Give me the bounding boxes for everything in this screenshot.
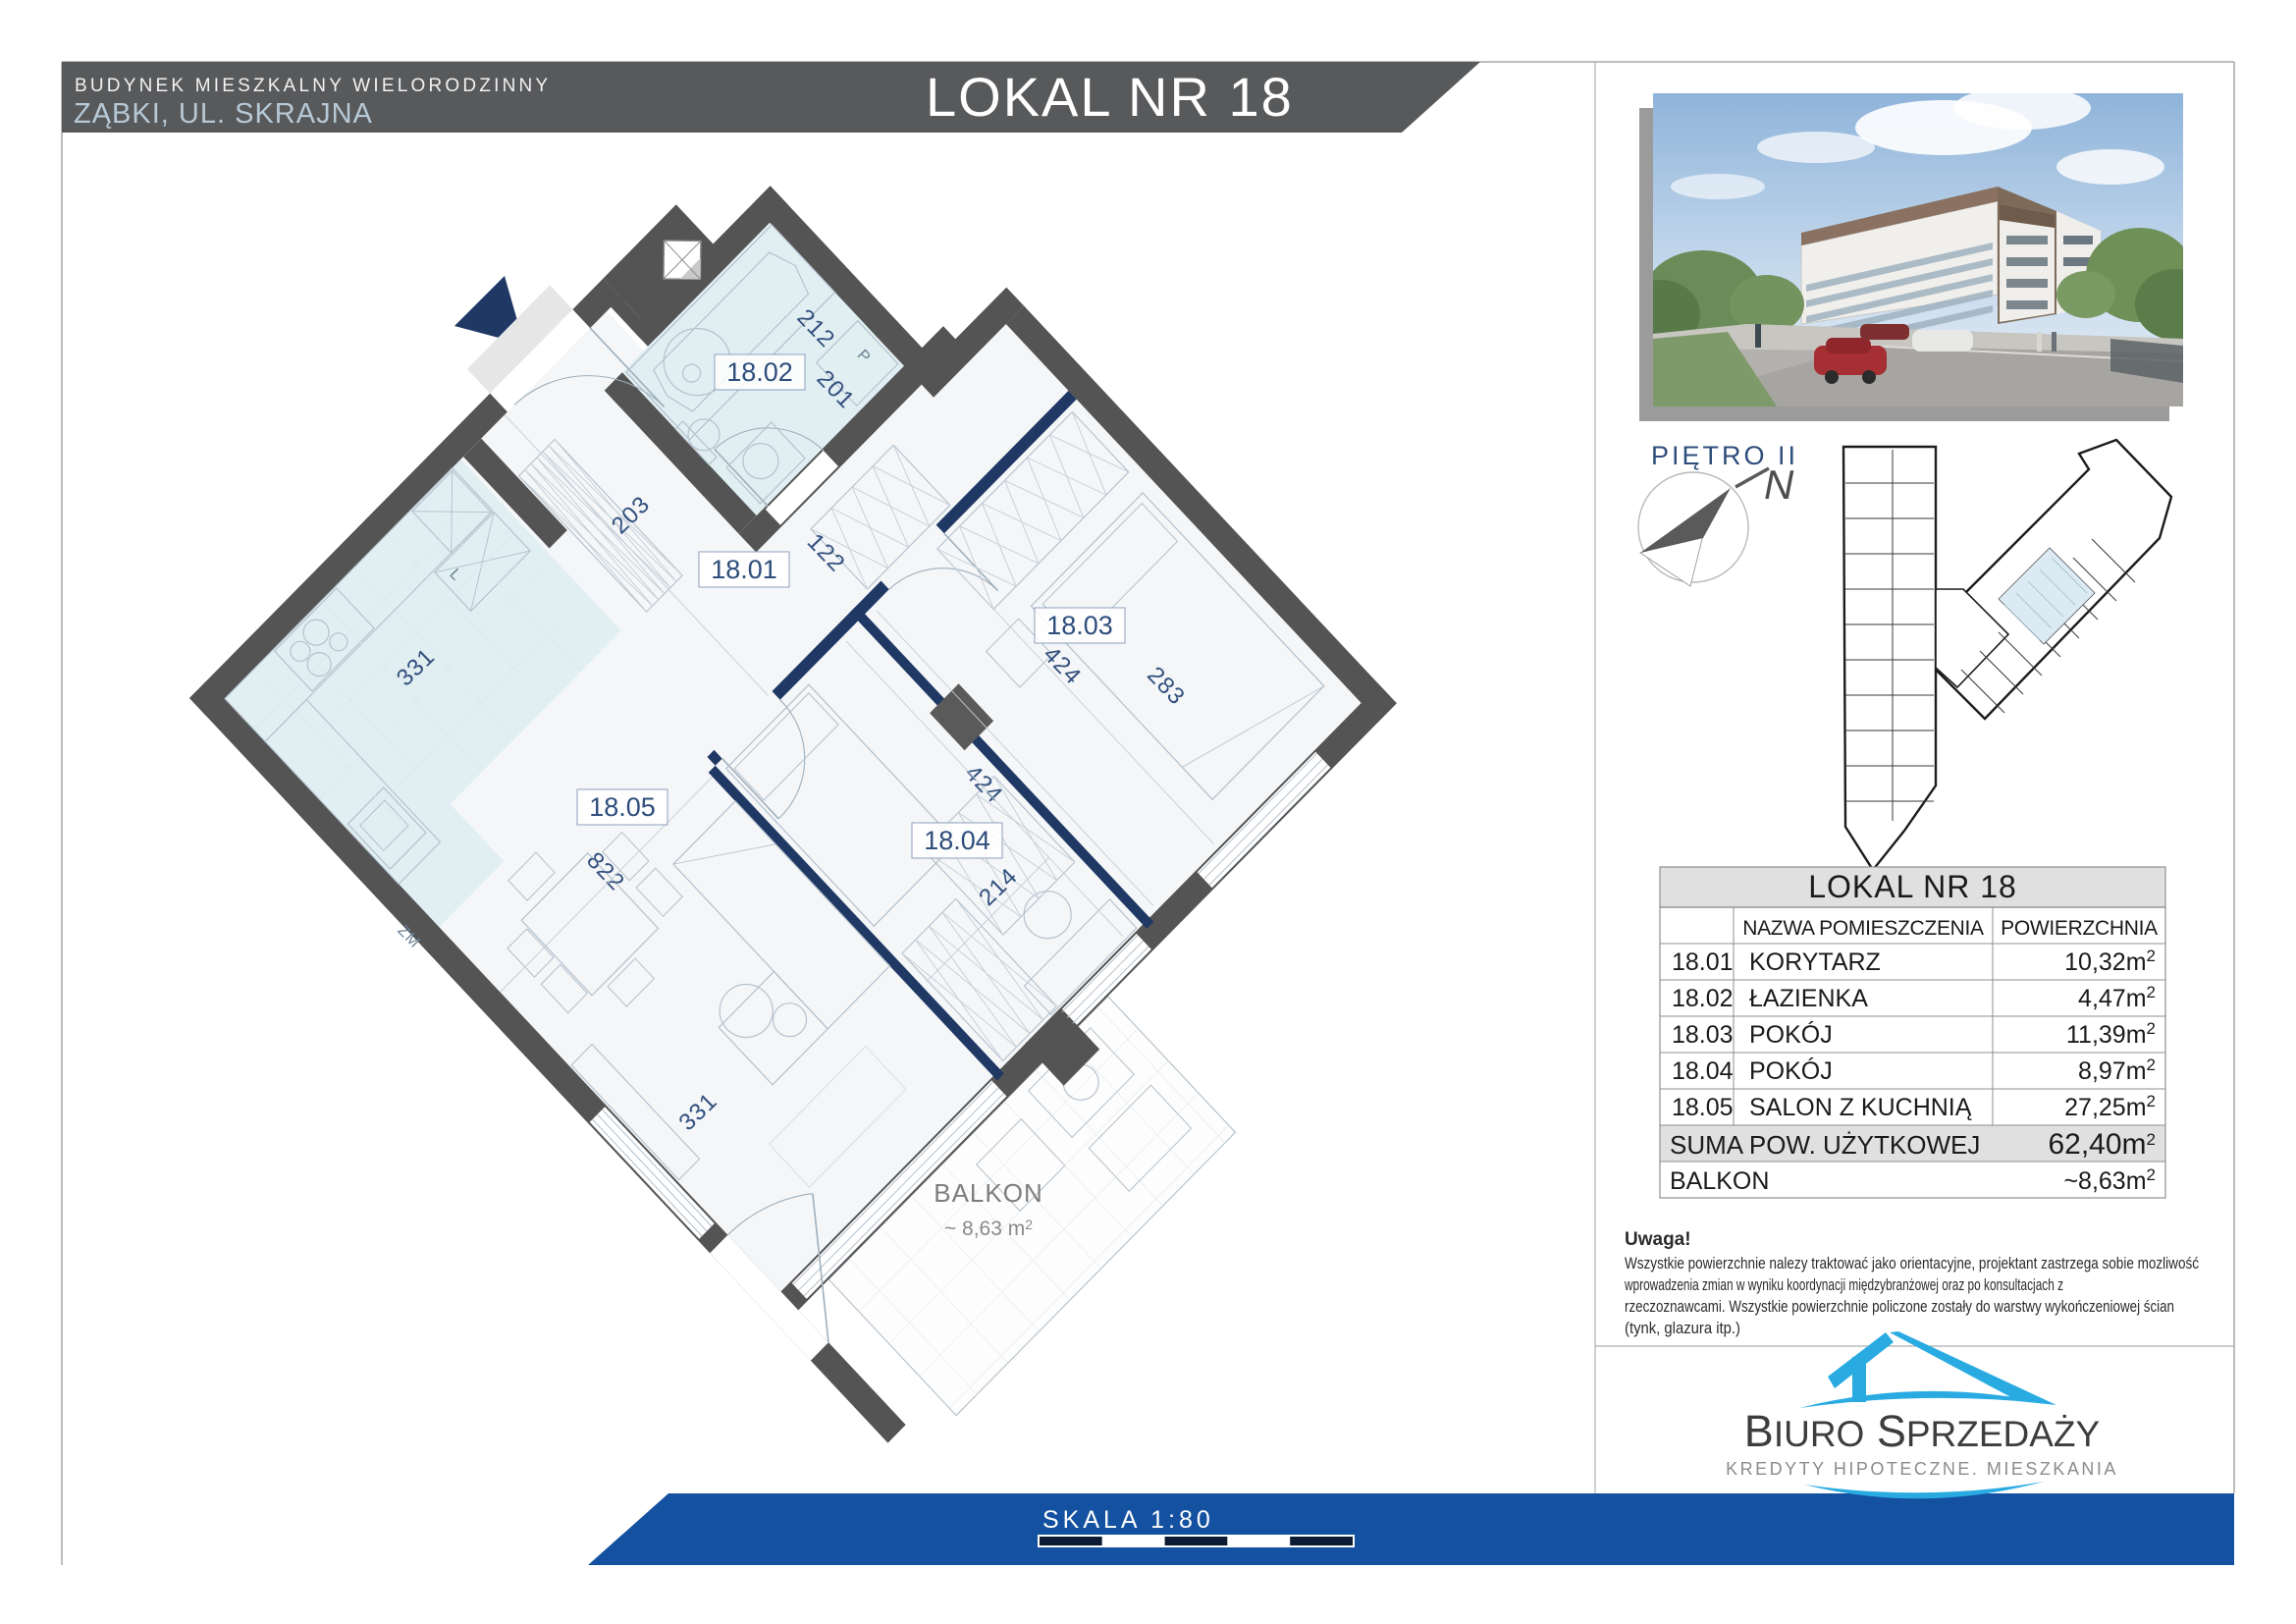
svg-text:18.01: 18.01 [711, 555, 777, 584]
svg-text:18.02: 18.02 [726, 357, 793, 387]
svg-text:KORYTARZ: KORYTARZ [1749, 948, 1881, 976]
svg-text:18.05: 18.05 [1672, 1094, 1734, 1121]
svg-text:NAZWA POMIESZCZENIA: NAZWA POMIESZCZENIA [1742, 917, 1984, 940]
svg-text:ŁAZIENKA: ŁAZIENKA [1749, 985, 1868, 1012]
svg-text:8,97m2: 8,97m2 [2078, 1056, 2156, 1085]
svg-text:18.04: 18.04 [1672, 1057, 1734, 1085]
svg-text:SKALA 1:80: SKALA 1:80 [1042, 1506, 1214, 1534]
svg-text:LOKAL NR 18: LOKAL NR 18 [1808, 869, 2017, 904]
svg-text:18.04: 18.04 [924, 826, 990, 855]
svg-text:POKÓJ: POKÓJ [1749, 1020, 1833, 1049]
svg-text:Uwaga!: Uwaga! [1625, 1229, 1691, 1250]
svg-text:LOKAL NR 18: LOKAL NR 18 [926, 66, 1294, 128]
svg-text:27,25m2: 27,25m2 [2064, 1092, 2156, 1121]
svg-text:ZĄBKI, UL. SKRAJNA: ZĄBKI, UL. SKRAJNA [74, 98, 373, 130]
svg-text:SUMA POW. UŻYTKOWEJ: SUMA POW. UŻYTKOWEJ [1670, 1130, 1980, 1160]
svg-text:18.02: 18.02 [1672, 985, 1734, 1012]
svg-text:Wszystkie powierzchnie nalezy: Wszystkie powierzchnie nalezy traktować … [1625, 1254, 2199, 1272]
svg-text:(tynk, glazura itp.): (tynk, glazura itp.) [1625, 1319, 1740, 1337]
svg-text:BALKON: BALKON [934, 1178, 1043, 1208]
svg-text:~ 8,63 m2: ~ 8,63 m2 [944, 1217, 1033, 1240]
svg-text:BUDYNEK MIESZKALNY WIELORODZIN: BUDYNEK MIESZKALNY WIELORODZINNY [75, 76, 551, 96]
svg-text:18.05: 18.05 [589, 792, 656, 822]
svg-text:BIURO SPRZEDAŻY: BIURO SPRZEDAŻY [1744, 1406, 2100, 1456]
svg-text:4,47m2: 4,47m2 [2078, 983, 2156, 1012]
svg-text:~8,63m2: ~8,63m2 [2063, 1165, 2156, 1195]
svg-text:BALKON: BALKON [1670, 1167, 1769, 1195]
svg-text:KREDYTY HIPOTECZNE. MIESZKANIA: KREDYTY HIPOTECZNE. MIESZKANIA [1726, 1459, 2118, 1479]
svg-text:10,32m2: 10,32m2 [2064, 947, 2156, 976]
svg-text:18.03: 18.03 [1046, 611, 1113, 640]
svg-text:rzeczoznawcami. Wszystkie powi: rzeczoznawcami. Wszystkie powierzchnie p… [1625, 1297, 2174, 1316]
svg-text:wprowadzenia zmian w wyniku ko: wprowadzenia zmian w wyniku koordynacji … [1624, 1275, 2063, 1294]
svg-text:N: N [1764, 461, 1794, 508]
svg-text:18.01: 18.01 [1672, 948, 1734, 976]
svg-text:18.03: 18.03 [1672, 1021, 1734, 1049]
svg-text:SALON Z KUCHNIĄ: SALON Z KUCHNIĄ [1749, 1094, 1972, 1121]
svg-text:POWIERZCHNIA: POWIERZCHNIA [2001, 917, 2158, 940]
svg-text:11,39m2: 11,39m2 [2066, 1019, 2156, 1049]
svg-text:POKÓJ: POKÓJ [1749, 1056, 1833, 1085]
svg-text:62,40m2: 62,40m2 [2048, 1128, 2156, 1161]
